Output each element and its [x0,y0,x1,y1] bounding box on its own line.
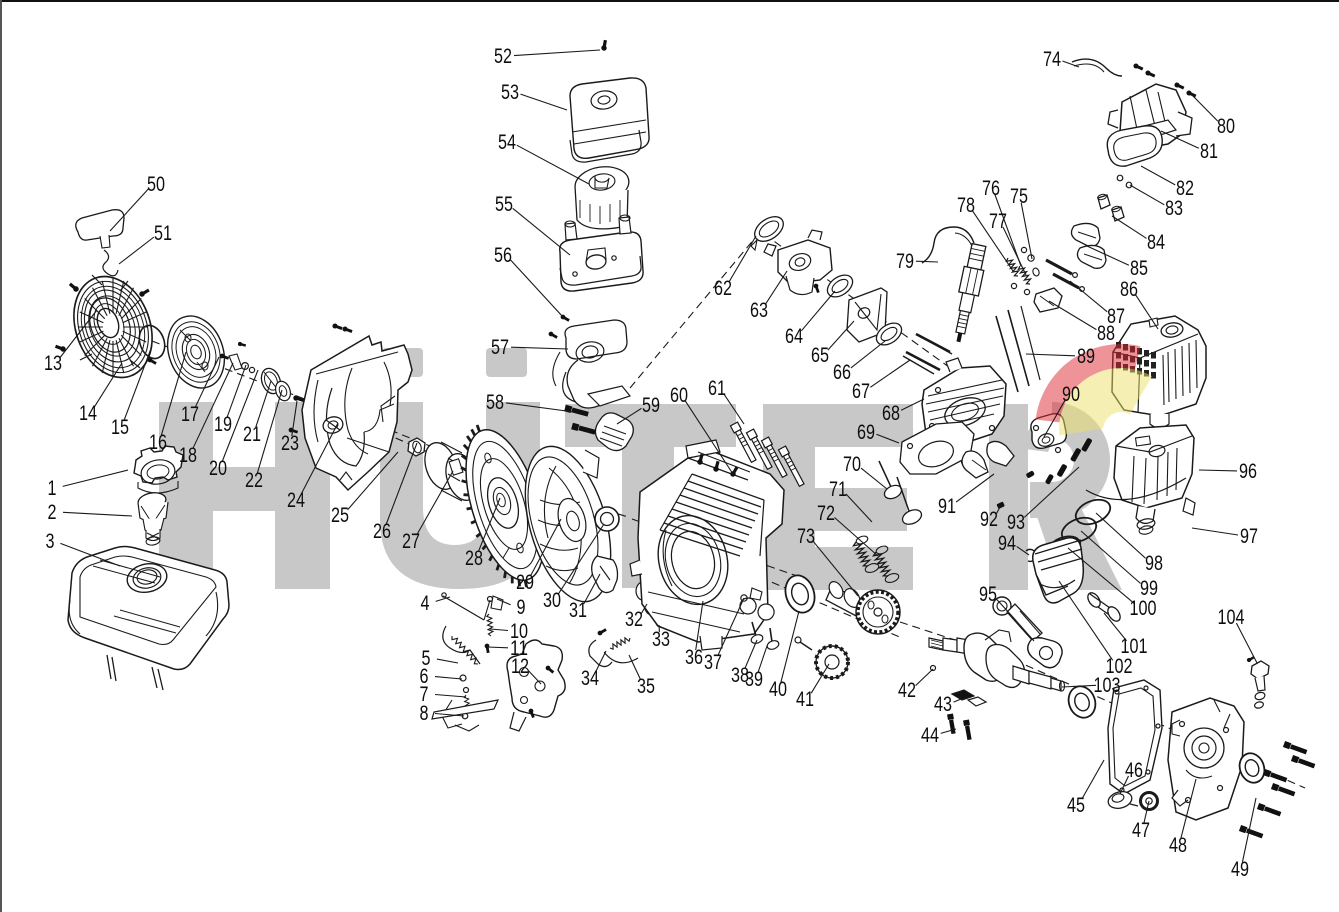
svg-text:14: 14 [79,402,97,425]
svg-text:22: 22 [245,469,263,492]
svg-text:52: 52 [494,45,512,68]
svg-text:23: 23 [281,432,299,455]
svg-text:67: 67 [852,380,870,403]
svg-text:8: 8 [420,702,429,725]
svg-text:89: 89 [1077,345,1095,368]
svg-text:33: 33 [652,628,670,651]
svg-text:74: 74 [1043,48,1061,71]
svg-text:73: 73 [797,525,815,548]
svg-text:19: 19 [214,413,232,436]
svg-text:36: 36 [685,646,703,669]
svg-text:55: 55 [495,193,513,216]
svg-text:26: 26 [373,520,391,543]
svg-text:24: 24 [287,489,305,512]
svg-text:58: 58 [486,391,504,414]
svg-text:48: 48 [1169,834,1187,857]
svg-text:29: 29 [516,571,534,594]
svg-text:69: 69 [857,421,875,444]
svg-text:63: 63 [750,299,768,322]
svg-text:17: 17 [181,403,199,426]
svg-text:90: 90 [1062,383,1080,406]
svg-text:80: 80 [1217,115,1235,138]
svg-text:97: 97 [1240,525,1258,548]
svg-text:60: 60 [670,384,688,407]
svg-text:49: 49 [1231,858,1249,881]
svg-text:66: 66 [833,361,851,384]
svg-text:1: 1 [48,477,57,500]
svg-text:46: 46 [1125,759,1143,782]
svg-text:9: 9 [517,596,526,619]
svg-text:103: 103 [1094,674,1121,697]
svg-text:43: 43 [934,693,952,716]
svg-text:72: 72 [817,502,835,525]
svg-text:4: 4 [421,592,430,615]
svg-text:42: 42 [898,679,916,702]
svg-text:65: 65 [811,344,829,367]
svg-text:15: 15 [111,416,129,439]
svg-text:34: 34 [581,667,599,690]
svg-text:31: 31 [569,599,587,622]
svg-text:84: 84 [1147,231,1165,254]
svg-text:104: 104 [1218,606,1245,629]
svg-text:75: 75 [1010,185,1028,208]
svg-text:56: 56 [494,244,512,267]
svg-text:57: 57 [491,336,509,359]
svg-text:47: 47 [1132,819,1150,842]
svg-text:50: 50 [147,173,165,196]
svg-text:98: 98 [1145,552,1163,575]
svg-text:91: 91 [938,495,956,518]
svg-text:68: 68 [882,402,900,425]
svg-text:21: 21 [243,423,261,446]
svg-text:40: 40 [769,678,787,701]
svg-text:51: 51 [154,222,172,245]
svg-text:39: 39 [745,668,763,691]
svg-text:71: 71 [829,478,847,501]
svg-text:12: 12 [511,655,529,678]
svg-text:61: 61 [708,377,726,400]
svg-text:78: 78 [957,194,975,217]
svg-text:32: 32 [625,608,643,631]
svg-text:85: 85 [1130,257,1148,280]
svg-text:76: 76 [982,177,1000,200]
svg-text:35: 35 [637,675,655,698]
svg-text:16: 16 [149,431,167,454]
svg-text:54: 54 [498,131,516,154]
svg-text:28: 28 [465,547,483,570]
svg-text:79: 79 [896,250,914,273]
svg-text:100: 100 [1130,597,1157,620]
svg-text:81: 81 [1200,140,1218,163]
svg-text:96: 96 [1239,460,1257,483]
svg-text:30: 30 [543,589,561,612]
svg-text:45: 45 [1067,794,1085,817]
svg-text:13: 13 [44,352,62,375]
svg-text:88: 88 [1097,322,1115,345]
svg-text:64: 64 [785,325,803,348]
svg-text:27: 27 [402,530,420,553]
svg-text:59: 59 [642,394,660,417]
svg-text:25: 25 [331,504,349,527]
svg-text:95: 95 [979,583,997,606]
svg-text:41: 41 [796,688,814,711]
svg-text:94: 94 [998,532,1016,555]
svg-text:53: 53 [501,81,519,104]
svg-text:93: 93 [1007,511,1025,534]
svg-text:44: 44 [921,724,939,747]
svg-text:83: 83 [1165,197,1183,220]
svg-text:37: 37 [704,651,722,674]
svg-text:3: 3 [46,530,55,553]
svg-text:92: 92 [980,508,998,531]
svg-text:62: 62 [714,277,732,300]
svg-text:2: 2 [48,501,57,524]
svg-text:77: 77 [989,210,1007,233]
svg-text:70: 70 [843,453,861,476]
svg-text:20: 20 [209,457,227,480]
svg-text:86: 86 [1120,278,1138,301]
svg-text:18: 18 [179,444,197,467]
